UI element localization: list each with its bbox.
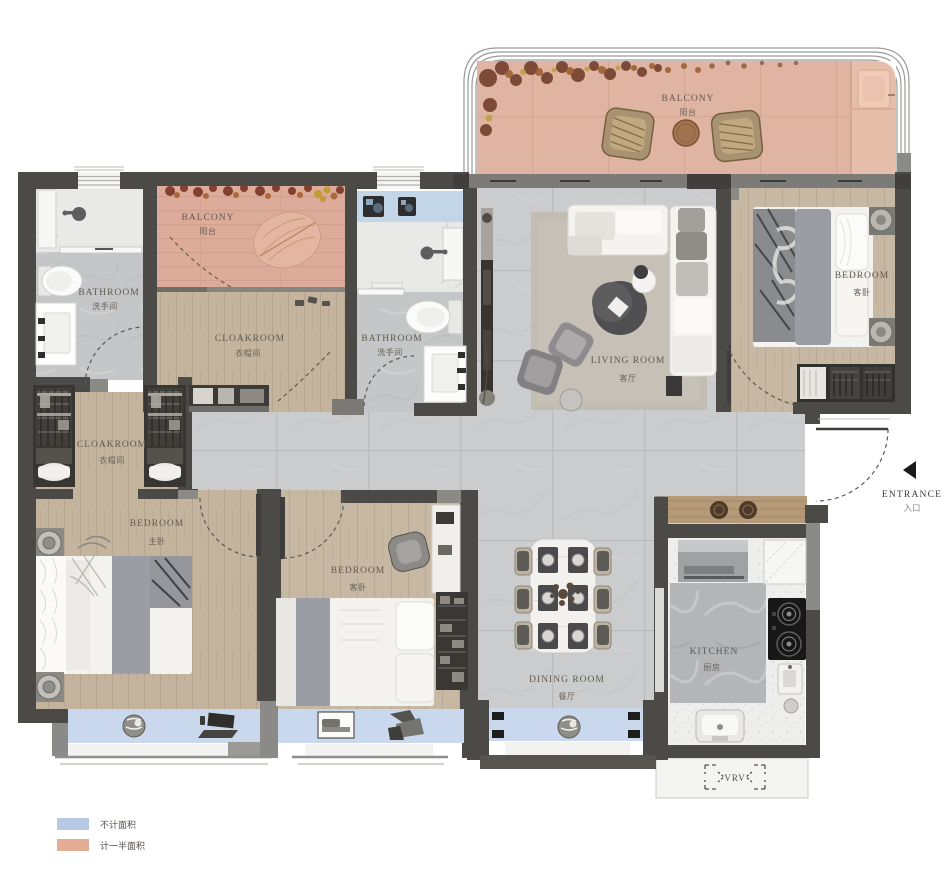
svg-text:不计面积: 不计面积 <box>100 819 136 830</box>
svg-text:计一半面积: 计一半面积 <box>100 840 145 851</box>
svg-text:KITCHEN: KITCHEN <box>690 647 739 657</box>
svg-text:阳台: 阳台 <box>680 107 697 117</box>
svg-text:客卧: 客卧 <box>854 287 871 297</box>
svg-text:CLOAKROOM: CLOAKROOM <box>215 334 285 344</box>
svg-text:衣帽间: 衣帽间 <box>99 455 125 465</box>
svg-text:BEDROOM: BEDROOM <box>130 519 185 529</box>
svg-text:客厅: 客厅 <box>620 373 637 383</box>
svg-text:主卧: 主卧 <box>149 536 166 546</box>
svg-text:ENTRANCE: ENTRANCE <box>882 490 942 500</box>
svg-text:DINING ROOM: DINING ROOM <box>529 675 605 685</box>
svg-text:BALCONY: BALCONY <box>182 213 235 223</box>
svg-text:餐厅: 餐厅 <box>559 692 576 701</box>
svg-text:洗手间: 洗手间 <box>92 301 118 311</box>
svg-text:BATHROOM: BATHROOM <box>78 288 139 298</box>
svg-text:LIVING ROOM: LIVING ROOM <box>591 356 666 366</box>
svg-text:客卧: 客卧 <box>350 582 367 592</box>
svg-text:阳台: 阳台 <box>200 226 217 236</box>
svg-text:BEDROOM: BEDROOM <box>835 271 890 281</box>
svg-text:入口: 入口 <box>903 503 920 513</box>
svg-text:BATHROOM: BATHROOM <box>361 334 422 344</box>
svg-text:厨房: 厨房 <box>704 662 721 672</box>
svg-text:洗手间: 洗手间 <box>377 347 403 357</box>
svg-text:衣帽间: 衣帽间 <box>235 348 261 358</box>
svg-text:CLOAKROOM: CLOAKROOM <box>77 440 147 450</box>
svg-text:BALCONY: BALCONY <box>662 94 715 104</box>
svg-text:BEDROOM: BEDROOM <box>331 566 386 576</box>
svg-text:VRV: VRV <box>724 773 745 783</box>
